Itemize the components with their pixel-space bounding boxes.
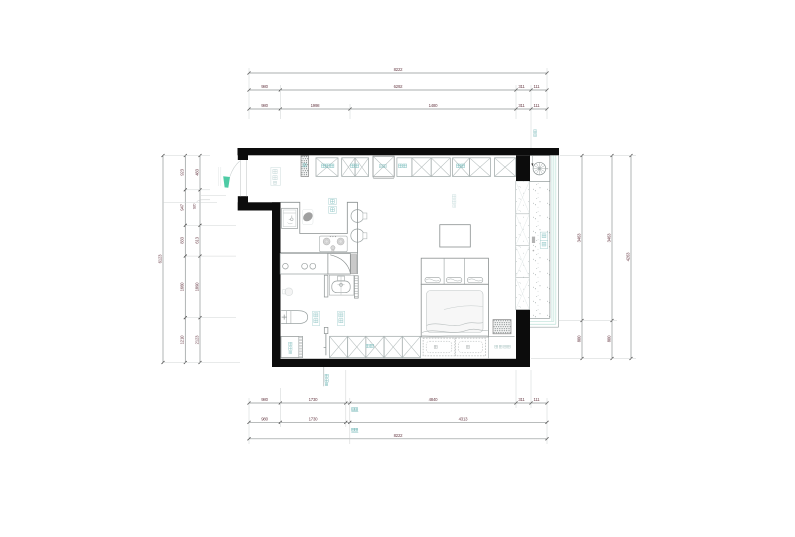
svg-text:980: 980: [261, 84, 268, 89]
svg-text:1998: 1998: [311, 103, 321, 108]
svg-text:980: 980: [261, 397, 268, 402]
svg-text:4263: 4263: [625, 252, 630, 262]
svg-text:1210: 1210: [180, 335, 185, 345]
svg-text:6292: 6292: [394, 84, 404, 89]
svg-text:1730: 1730: [309, 397, 319, 402]
svg-text:111: 111: [534, 103, 541, 108]
svg-text:947: 947: [180, 203, 185, 210]
svg-text:111: 111: [534, 397, 541, 402]
svg-text:980: 980: [261, 417, 268, 422]
svg-text:6123: 6123: [157, 254, 162, 264]
svg-text:4313: 4313: [459, 417, 469, 422]
svg-text:311: 311: [518, 397, 525, 402]
svg-text:483: 483: [194, 168, 199, 175]
svg-text:4840: 4840: [429, 397, 439, 402]
svg-text:311: 311: [518, 84, 525, 89]
svg-text:980: 980: [261, 103, 268, 108]
svg-text:1890: 1890: [194, 282, 199, 292]
svg-text:311: 311: [518, 103, 525, 108]
svg-text:111: 111: [534, 84, 541, 89]
svg-text:800: 800: [576, 335, 581, 342]
svg-text:3463: 3463: [576, 233, 581, 243]
svg-text:920: 920: [192, 204, 196, 210]
svg-text:923: 923: [180, 168, 185, 175]
svg-text:613: 613: [194, 236, 199, 243]
svg-text:1660: 1660: [180, 282, 185, 292]
svg-text:800: 800: [606, 335, 611, 342]
svg-text:1480: 1480: [429, 103, 439, 108]
svg-text:8222: 8222: [394, 67, 404, 72]
svg-text:3463: 3463: [606, 233, 611, 243]
svg-text:833: 833: [180, 236, 185, 243]
svg-text:1730: 1730: [309, 417, 319, 422]
svg-text:8222: 8222: [394, 433, 404, 438]
svg-text:2123: 2123: [194, 335, 199, 345]
